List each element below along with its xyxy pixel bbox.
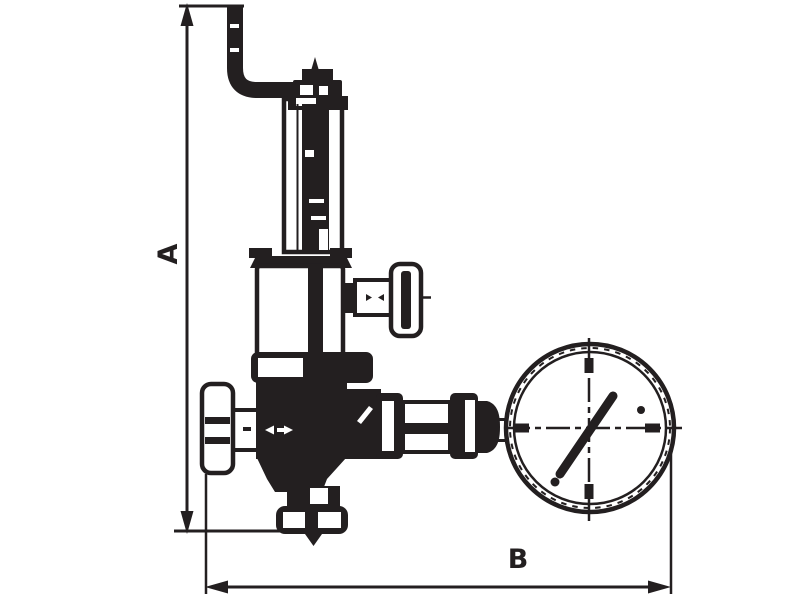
hex-flange [251, 352, 373, 383]
valve-drawing: A B [0, 0, 800, 598]
dimension-b-label: B [508, 544, 529, 575]
inlet-handwheel [202, 384, 233, 473]
needle-counterweight [551, 478, 560, 487]
gauge-piping [376, 393, 513, 459]
adjusting-cap [293, 57, 342, 102]
dimension-a-label: A [153, 243, 184, 264]
side-tap [343, 264, 431, 336]
dimension-b-arrow-left-icon [205, 581, 228, 594]
spring-housing [284, 96, 348, 252]
valve-body [256, 381, 381, 459]
pressure-gauge [506, 338, 682, 521]
technical-drawing-canvas: A B [0, 0, 800, 598]
inlet-connection [202, 384, 258, 473]
reducer [478, 401, 500, 453]
spring-coil-gap [319, 229, 328, 250]
overflow-pipe [230, 7, 302, 90]
dial-dot [637, 406, 645, 414]
spring-coil-gap [311, 216, 326, 220]
drain-tip [305, 534, 322, 546]
dimension-b-arrow-right-icon [648, 581, 671, 594]
spring-coil-gap [305, 150, 314, 157]
valve-stem [308, 268, 323, 356]
bonnet [257, 266, 343, 357]
bottom-union [276, 486, 348, 546]
spring-coil-gap [309, 199, 324, 203]
